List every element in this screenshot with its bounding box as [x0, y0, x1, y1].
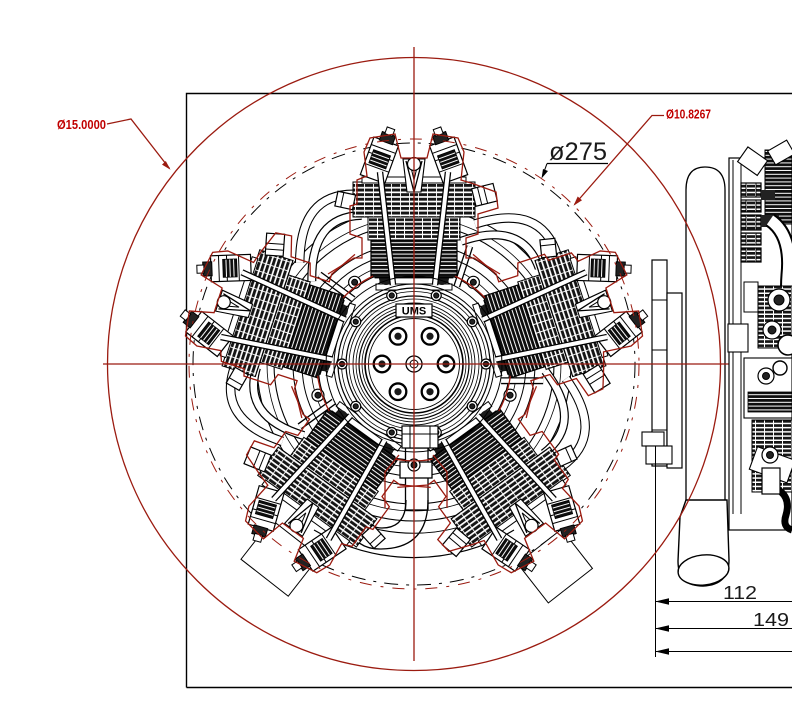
svg-text:Ø10.8267: Ø10.8267	[666, 108, 711, 122]
svg-text:ø275: ø275	[549, 138, 607, 166]
svg-text:112: 112	[723, 582, 757, 603]
svg-text:149: 149	[753, 609, 789, 630]
svg-text:Ø15.0000: Ø15.0000	[57, 118, 106, 132]
